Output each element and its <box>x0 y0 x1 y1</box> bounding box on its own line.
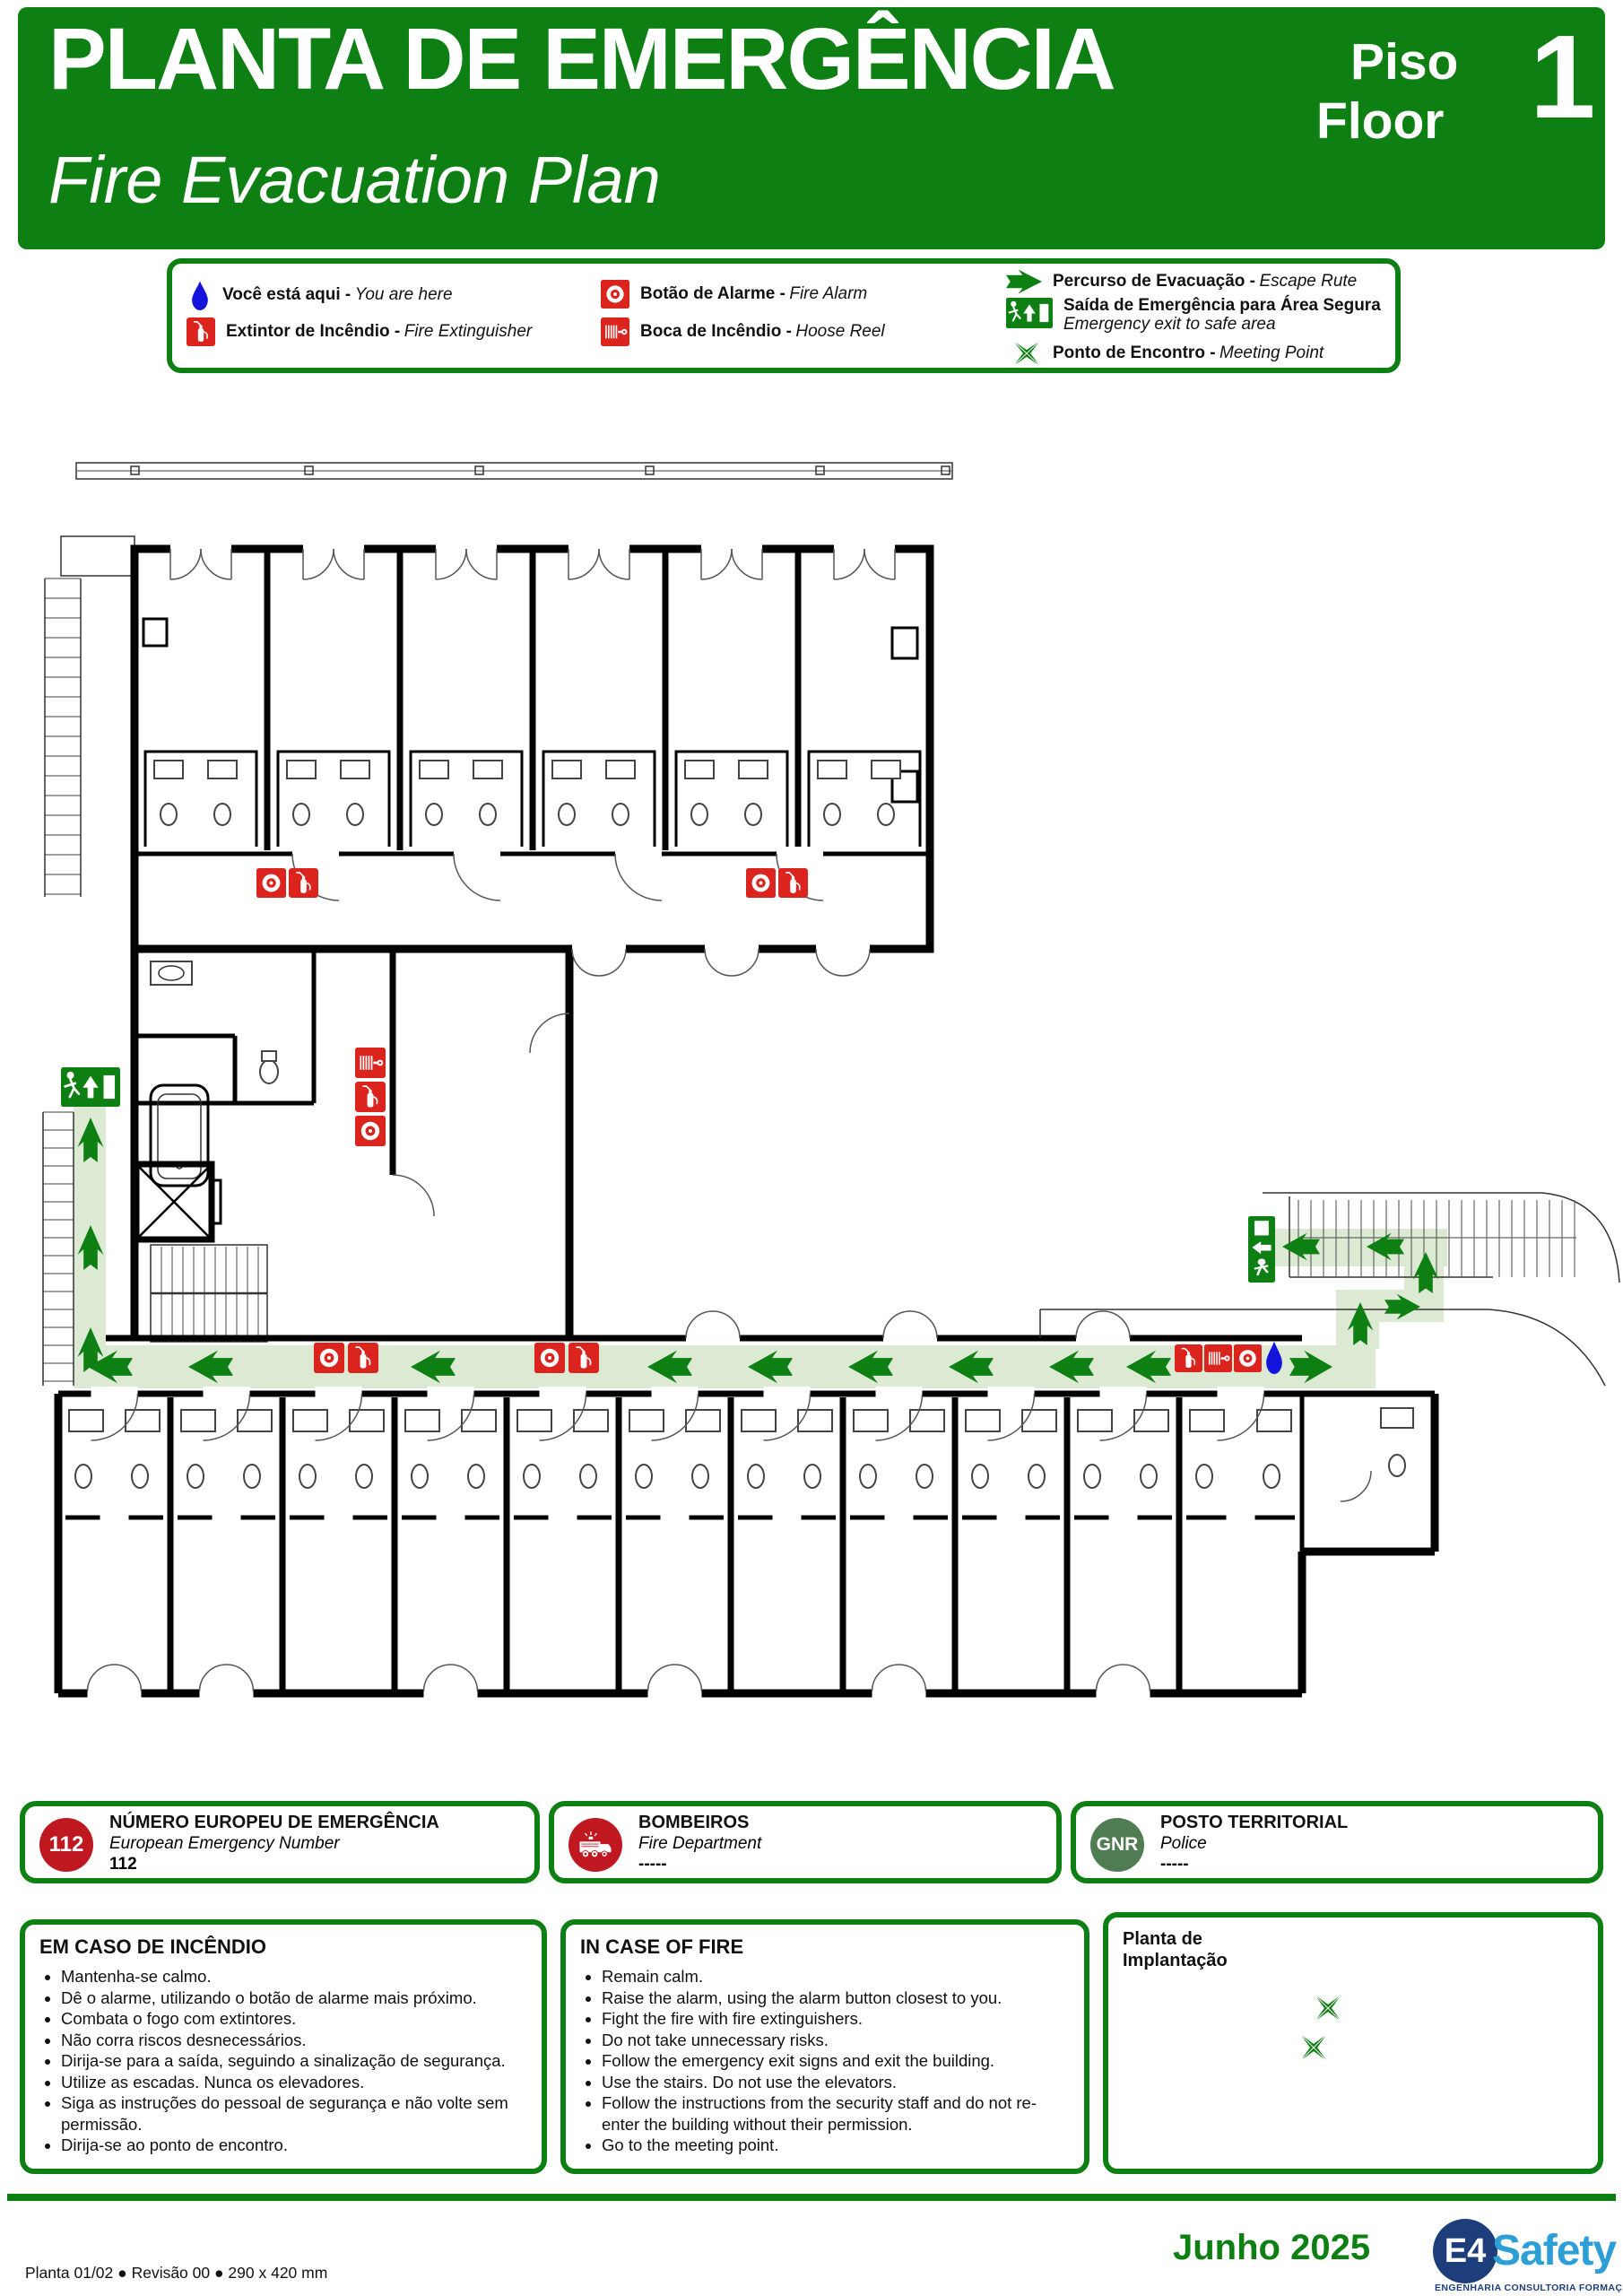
site-plan-box: Planta de Implantação <box>1103 1912 1603 2174</box>
instruction-item: Go to the meeting point. <box>602 2135 1070 2156</box>
e4safety-logo-icon: E4 <box>1433 2219 1497 2283</box>
instruction-item: Use the stairs. Do not use the elevators… <box>602 2072 1070 2093</box>
escape-route-arrow-icon <box>1006 269 1042 294</box>
footer-divider <box>7 2194 1616 2201</box>
bathtub <box>151 1085 208 1186</box>
instructions-pt-list: Mantenha-se calmo.Dê o alarme, utilizand… <box>61 1966 527 2156</box>
fire-alarm-icon <box>534 1343 565 1373</box>
site-plan-title-line1: Planta de <box>1123 1928 1584 1950</box>
left-wing-walls <box>135 949 569 1338</box>
instruction-item: Remain calm. <box>602 1966 1070 1987</box>
hose-reel-icon <box>355 1048 386 1078</box>
legend-label: Você está aqui - <box>222 285 351 304</box>
legend-item-escape-route: Percurso de Evacuação - Escape Rute <box>1006 269 1357 294</box>
hose-reel-icon <box>1204 1344 1232 1372</box>
page-subtitle: Fire Evacuation Plan <box>48 142 661 218</box>
plan-static-walls <box>58 463 1619 1693</box>
floor-number: 1 <box>1530 9 1595 144</box>
instruction-item: Utilize as escadas. Nunca os elevadores. <box>61 2072 527 2093</box>
emergency-112-box: 112 NÚMERO EUROPEU DE EMERGÊNCIA Europea… <box>20 1801 540 1883</box>
emergency-title: NÚMERO EUROPEU DE EMERGÊNCIA <box>109 1812 439 1833</box>
instruction-item: Não corra riscos desnecessários. <box>61 2030 527 2051</box>
instructions-en-list: Remain calm.Raise the alarm, using the a… <box>602 1966 1070 2156</box>
instruction-item: Raise the alarm, using the alarm button … <box>602 1987 1070 2009</box>
fire-truck-icon <box>568 1818 622 1872</box>
instruction-item: Mantenha-se calmo. <box>61 1966 527 1987</box>
e4safety-logo-name: Safety <box>1492 2226 1616 2275</box>
e4safety-logo-tagline: ENGENHARIA CONSULTORIA FORMAÇÃO <box>1435 2283 1623 2293</box>
fire-extinguisher-icon <box>568 1343 599 1373</box>
fire-extinguisher-icon <box>289 868 318 898</box>
floor-plan <box>0 386 1623 1794</box>
you-are-here-drop-icon <box>188 280 212 310</box>
site-plan-title-line2: Implantação <box>1123 1950 1584 1971</box>
fire-alarm-icon <box>256 868 286 898</box>
badge-112: 112 <box>39 1818 93 1872</box>
legend-box: Você está aqui - You are here Extintor d… <box>167 258 1401 373</box>
meeting-point-icon <box>1011 339 1042 368</box>
instruction-item: Do not take unnecessary risks. <box>602 2030 1070 2051</box>
legend-item-extinguisher: Extintor de Incêndio - Fire Extinguisher <box>187 317 532 346</box>
fire-extinguisher-icon <box>778 868 808 898</box>
instruction-item: Combata o fogo com extintores. <box>61 2008 527 2030</box>
meeting-point-icon <box>1298 2032 1329 2063</box>
fire-extinguisher-icon <box>1175 1344 1202 1372</box>
emergency-police-box: GNR POSTO TERRITORIAL Police ----- <box>1071 1801 1603 1883</box>
meeting-point-icon <box>1313 1993 1343 2023</box>
legend-item-alarm: Botão de Alarme - Fire Alarm <box>601 280 867 309</box>
emergency-exit-icon <box>1006 298 1053 328</box>
instruction-item: Dirija-se para a saída, seguindo a sinal… <box>61 2050 527 2072</box>
fire-alarm-icon <box>314 1343 344 1373</box>
header-banner: PLANTA DE EMERGÊNCIA Fire Evacuation Pla… <box>18 7 1605 249</box>
instruction-item: Dê o alarme, utilizando o botão de alarm… <box>61 1987 527 2009</box>
legend-item-emergency-exit: Saída de Emergência para Área Segura Eme… <box>1006 296 1381 334</box>
emergency-exit-sign <box>1248 1216 1275 1283</box>
instruction-item: Fight the fire with fire extinguishers. <box>602 2008 1070 2030</box>
legend-item-hose-reel: Boca de Incêndio - Hoose Reel <box>601 317 885 346</box>
badge-gnr: GNR <box>1090 1818 1144 1872</box>
emergency-exit-sign <box>61 1067 120 1107</box>
instruction-item: Dirija-se ao ponto de encontro. <box>61 2135 527 2156</box>
emergency-fire-dept-box: BOMBEIROS Fire Department ----- <box>549 1801 1062 1883</box>
instructions-pt-box: EM CASO DE INCÊNDIO Mantenha-se calmo.Dê… <box>20 1919 547 2174</box>
instruction-item: Siga as instruções do pessoal de seguran… <box>61 2092 527 2135</box>
fire-extinguisher-icon <box>355 1082 386 1112</box>
instructions-en-title: IN CASE OF FIRE <box>580 1935 1070 1959</box>
footer-plan-info: Planta 01/02 ● Revisão 00 ● 290 x 420 mm <box>25 2264 327 2283</box>
plan-rooms <box>43 552 1575 1690</box>
fire-alarm-icon <box>1234 1344 1262 1372</box>
fire-extinguisher-icon <box>187 317 215 346</box>
fire-alarm-icon <box>355 1116 386 1146</box>
instructions-pt-title: EM CASO DE INCÊNDIO <box>39 1935 527 1959</box>
floor-label-pt: Piso <box>1350 32 1458 91</box>
page-title: PLANTA DE EMERGÊNCIA <box>48 9 1115 109</box>
fire-alarm-icon <box>746 868 776 898</box>
floor-label-en: Floor <box>1316 91 1444 151</box>
legend-item-you-are-here: Você está aqui - You are here <box>188 280 453 310</box>
fire-alarm-icon <box>601 280 629 309</box>
fire-extinguisher-icon <box>348 1343 378 1373</box>
legend-item-meeting-point: Ponto de Encontro - Meeting Point <box>1006 339 1324 368</box>
footer-date: Junho 2025 <box>1173 2228 1370 2268</box>
instruction-item: Follow the instructions from the securit… <box>602 2092 1070 2135</box>
instructions-en-box: IN CASE OF FIRE Remain calm.Raise the al… <box>560 1919 1089 2174</box>
instruction-item: Follow the emergency exit signs and exit… <box>602 2050 1070 2072</box>
hose-reel-icon <box>601 317 629 346</box>
